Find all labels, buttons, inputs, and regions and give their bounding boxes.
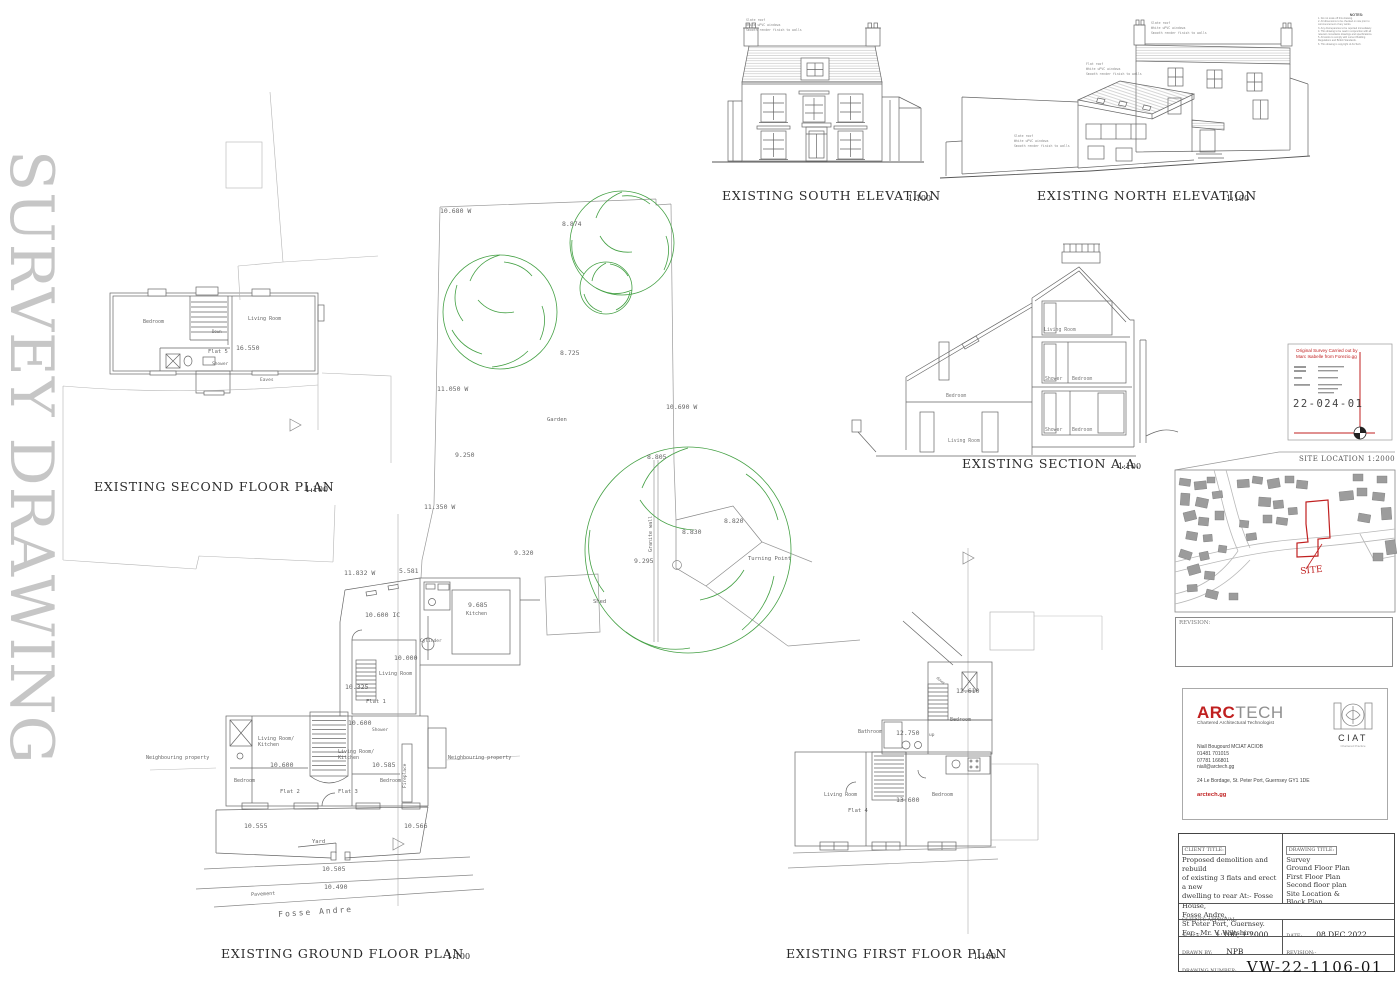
ground_floor-label: Bedroom — [234, 779, 255, 784]
ground_floor-label: Neighbouring property — [146, 756, 209, 761]
survey-number: 22-024-01 — [1293, 399, 1363, 410]
ground_floor-label: 5.581 — [399, 568, 419, 575]
elevation_notes-label: Smooth render finish to walls — [1014, 145, 1070, 148]
first_floor-label: Flat 4 — [848, 809, 868, 815]
ground_floor-label: 10.585 — [372, 762, 395, 769]
section-label: Bedroom — [1072, 378, 1092, 383]
first_floor-label: Bedroom — [950, 718, 971, 723]
garden-label: 9.320 — [514, 550, 534, 557]
south-elevation-drawing — [712, 23, 924, 162]
site-location-title: SITE LOCATION 1:2000 — [1299, 456, 1395, 463]
ground_floor-label: 9.685 — [468, 602, 488, 609]
elevation_notes-label: Smooth render finish to walls — [746, 29, 802, 32]
client-line: Proposed demolition and rebuild — [1182, 856, 1279, 874]
garden-label: 11.350 W — [424, 504, 455, 511]
first_floor-label: up — [929, 734, 934, 739]
ground_floor-label: 10.600 IC — [365, 612, 400, 619]
section-label: Shower — [1045, 378, 1062, 383]
arctech-address: 24 Le Bordage, St. Peter Port, Guernsey … — [1197, 778, 1310, 784]
elevation_notes-label: White uPVC windows — [746, 24, 781, 27]
drawing-number-label: DRAWING NUMBER: — [1182, 968, 1237, 974]
north-elevation-drawing — [940, 20, 1310, 178]
section-label: Bedroom — [946, 395, 966, 400]
second_floor-label: Eaves — [260, 379, 274, 384]
stamp-label: Original Survey Carried out by — [1296, 349, 1358, 354]
ground_floor-label: Flat 2 — [280, 790, 300, 796]
arctech-contact: Niall Bougourd MCIAT ACIOB 01481 701015 … — [1197, 744, 1263, 771]
first_floor-label: Living Room — [824, 793, 857, 798]
first_floor-label: Bathroom — [858, 730, 882, 735]
second-floor-plan-drawing — [63, 92, 391, 569]
first_floor-label: Bedroom — [932, 793, 953, 798]
elevation_notes-label: Flat roof — [1086, 63, 1103, 66]
ground_floor-label: Cylinder — [420, 640, 442, 645]
elevation_notes-label: Slate roof — [1014, 135, 1033, 138]
garden-site-drawing — [421, 191, 860, 653]
drawing-title-cell: DRAWING TITLE: Survey Ground Floor Plan … — [1282, 834, 1353, 903]
first_floor-label: 13.600 — [896, 797, 919, 804]
garden-label: 9.250 — [455, 452, 475, 459]
ground_floor-label: Yard — [312, 840, 325, 846]
section-aa-drawing — [852, 244, 1178, 456]
garden-label: 10.690 W — [666, 404, 697, 411]
ground_floor-label: Flat 3 — [338, 790, 358, 796]
drawing-title-line: First Floor Plan — [1286, 873, 1350, 882]
elevation_notes-label: Smooth render finish to walls — [1151, 32, 1207, 35]
garden-label: 9.295 — [634, 558, 654, 565]
drawing-title-label: DRAWING TITLE: — [1286, 846, 1337, 855]
second_floor-label: Bedroom — [143, 320, 164, 325]
ground_floor-label: 10.566 — [404, 823, 427, 830]
ground_floor-label: Bedroom — [380, 779, 401, 784]
arctech-logo: ARCTECH — [1197, 703, 1284, 723]
elevation_notes-label: White uPVC windows — [1014, 140, 1049, 143]
ciat-emblem-icon: CIAT Chartered Practice — [1331, 701, 1375, 751]
tree-symbols — [443, 191, 791, 653]
garden-label: 8.830 — [682, 529, 702, 536]
arctech-tagline: Chartered Architectural Technologist — [1197, 721, 1274, 726]
title-section-aa: EXISTING SECTION A.A. — [962, 458, 1140, 471]
ground_floor-label: 10.000 — [394, 655, 417, 662]
title-second-floor-plan: EXISTING SECOND FLOOR PLAN — [94, 481, 334, 494]
notes-lines: 1. Do not scale off this drawing.2. All … — [1318, 17, 1395, 46]
elevation_notes-label: Smooth render finish to walls — [1086, 73, 1142, 76]
elevation_notes-label: Slate roof — [746, 19, 765, 22]
stamp-label: Marc Isabelle from Forezio.gg — [1296, 355, 1357, 360]
garden-label: 8.805 — [647, 454, 667, 461]
scale-section-aa: 1:100 — [1118, 463, 1141, 471]
section-label: Bedroom — [1072, 429, 1092, 434]
contact-email: niall@arctech.gg — [1197, 764, 1263, 771]
garden-label: Garden — [547, 418, 567, 424]
revision-box-label: REVISION: — [1176, 618, 1392, 626]
garden-label: 10.680 W — [440, 208, 471, 215]
title-north-elevation: EXISTING NORTH ELEVATION — [1037, 190, 1257, 203]
elevation_notes-label: Slate roof — [1151, 22, 1170, 25]
second_floor-label: Living Room — [248, 317, 281, 322]
title-block: CLIENT TITLE: Proposed demolition and re… — [1178, 833, 1395, 972]
drawing-title-line: Site Location & — [1286, 890, 1350, 899]
ciat-letters: CIAT — [1338, 733, 1368, 743]
ciat-subtitle: Chartered Practice — [1340, 744, 1365, 748]
arctech-logo-tech: TECH — [1235, 703, 1283, 722]
section-label: Living Room — [1044, 329, 1076, 334]
notes-block: NOTES: 1. Do not scale off this drawing.… — [1318, 13, 1395, 46]
garden-label: Turning Point — [748, 557, 791, 563]
ground_floor-label: Shower — [372, 729, 388, 734]
contact-phone-2: 07781 166801 — [1197, 758, 1263, 765]
contact-name: Niall Bougourd MCIAT ACIOB — [1197, 744, 1263, 751]
ground_floor-label: 10.555 — [244, 823, 267, 830]
section-label: Living Room — [948, 440, 980, 445]
ground_floor-label: Kitchen — [338, 756, 359, 761]
second_floor-label: Down — [212, 330, 222, 334]
ground_floor-label: Neighbouring property — [448, 756, 511, 761]
garden-label: 8.820 — [724, 518, 744, 525]
ground_floor-label: 10.600 — [270, 762, 293, 769]
ground_floor-label: Living Room — [379, 672, 412, 677]
ground_floor-label: Kitchen — [466, 612, 487, 617]
elevation_notes-label: White uPVC windows — [1086, 68, 1121, 71]
ground_floor-label: Flat 1 — [366, 700, 386, 706]
arctech-logo-arc: ARC — [1197, 703, 1235, 722]
first_floor-label: 12.610 — [956, 688, 979, 695]
elevation_notes-label: White uPVC windows — [1151, 27, 1186, 30]
contact-phone-1: 01481 701015 — [1197, 751, 1263, 758]
ground_floor-label: 10.600 — [348, 720, 371, 727]
garden-label: 8.874 — [562, 221, 582, 228]
scale-south-elevation: 1:100 — [908, 195, 931, 203]
scale-ground-floor-plan: 1:100 — [447, 953, 470, 961]
second_floor-label: Flat 5 — [208, 350, 228, 356]
scale-north-elevation: 1:100 — [1226, 195, 1249, 203]
survey-drawing-sheet: SURVEY DRAWING — [0, 0, 1400, 989]
revision-box: REVISION: — [1175, 617, 1393, 667]
first-floor-plan-drawing — [788, 548, 1102, 934]
second_floor-label: Shower — [212, 363, 228, 368]
second_floor-label: 16.550 — [236, 345, 259, 352]
notes-line: 6. This drawing is copyright of ArcTech. — [1318, 43, 1395, 46]
garden-label: Shed — [593, 600, 606, 606]
section-label: Shower — [1045, 429, 1062, 434]
drawing-number-value: VW-22-1106-01 — [1247, 958, 1383, 976]
drawing-title-line: Second floor plan — [1286, 881, 1350, 890]
garden-label: 11.050 W — [437, 386, 468, 393]
ground_floor-label: 10.325 — [345, 684, 368, 691]
first_floor-label: 12.750 — [896, 730, 919, 737]
client-title-cell: CLIENT TITLE: Proposed demolition and re… — [1179, 834, 1282, 903]
title-ground-floor-plan: EXISTING GROUND FLOOR PLAN — [221, 948, 464, 961]
client-line: of existing 3 flats and erect a new — [1182, 874, 1279, 892]
drawing-title-line: Ground Floor Plan — [1286, 864, 1350, 873]
scale-first-floor-plan: 1:100 — [973, 953, 996, 961]
ground_floor-label: 11.832 W — [344, 570, 375, 577]
ground_floor-label: Fireplace — [404, 764, 409, 788]
ground_floor-label: 10.505 — [322, 866, 345, 873]
garden-label: 8.725 — [560, 350, 580, 357]
arctech-website: arctech.gg — [1197, 792, 1226, 798]
site-location-map — [1175, 452, 1397, 612]
scale-second-floor-plan: 1:100 — [305, 486, 328, 494]
garden-label: Granite wall — [649, 516, 654, 552]
ground_floor-label: Kitchen — [258, 743, 279, 748]
arctech-card: ARCTECH Chartered Architectural Technolo… — [1182, 688, 1388, 820]
ground_floor-label: 10.490 — [324, 884, 347, 891]
client-title-label: CLIENT TITLE: — [1182, 846, 1226, 855]
drawing-title-line: Survey — [1286, 856, 1350, 865]
